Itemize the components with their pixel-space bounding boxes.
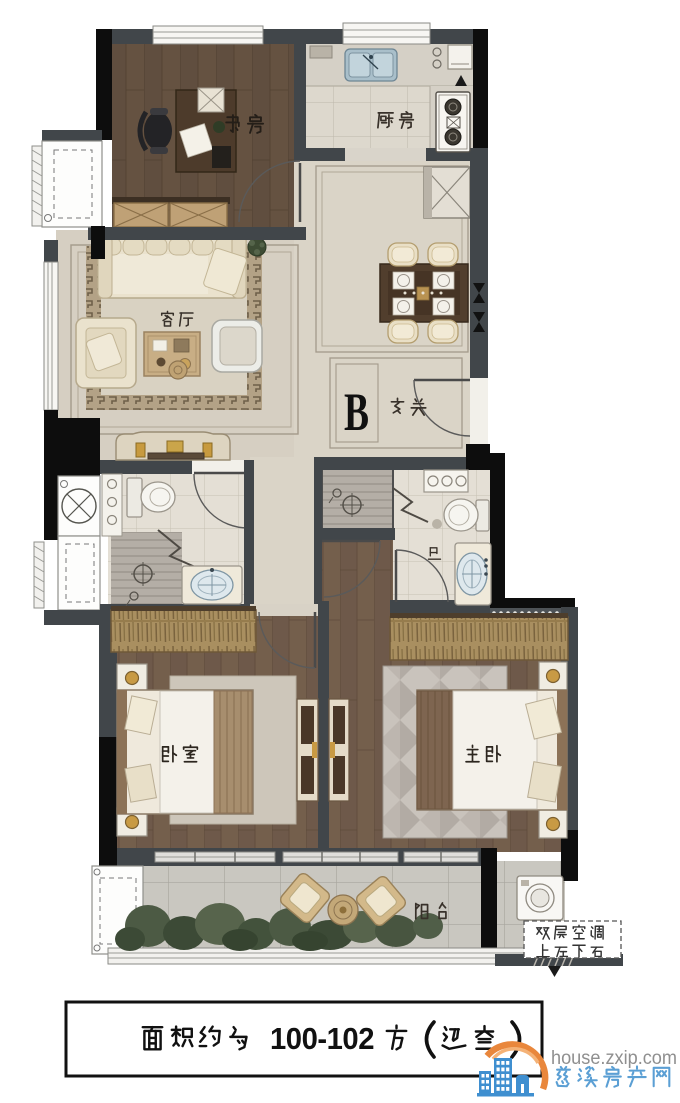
svg-text:house.zxip.com: house.zxip.com bbox=[551, 1048, 677, 1069]
svg-text:100-102: 100-102 bbox=[270, 1021, 374, 1056]
svg-text:B: B bbox=[344, 382, 369, 442]
